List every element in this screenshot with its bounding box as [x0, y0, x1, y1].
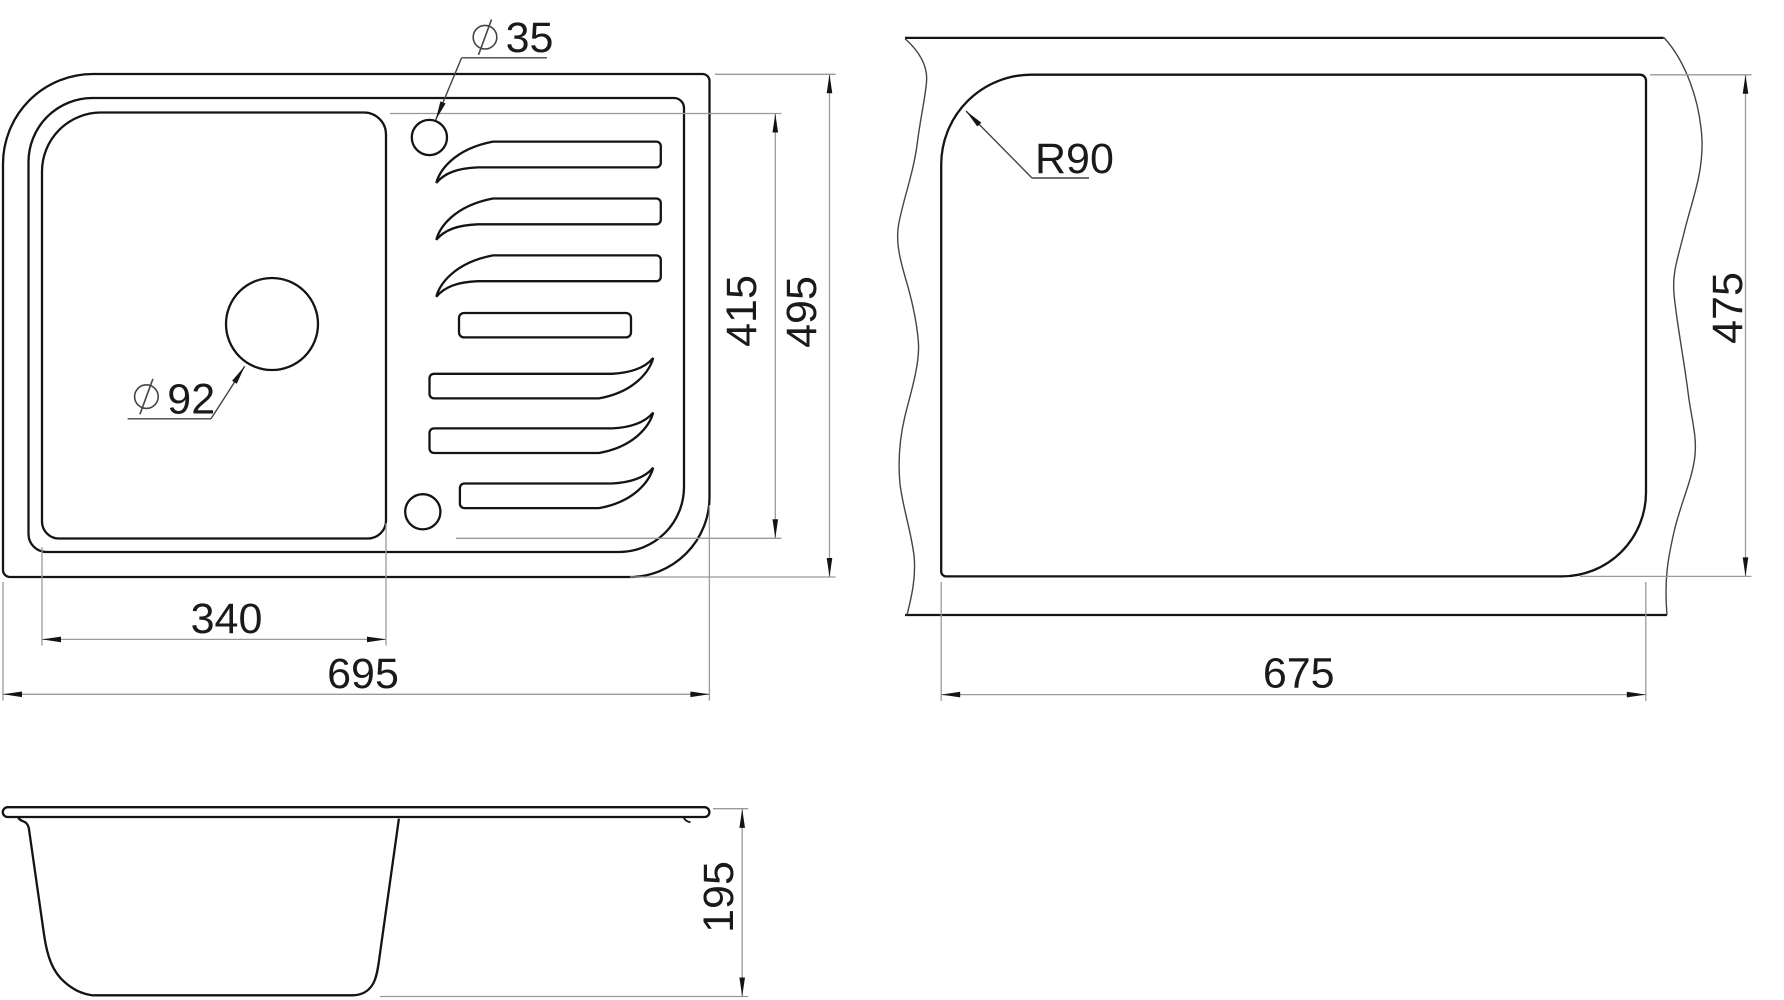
svg-text:92: 92: [167, 375, 215, 423]
svg-text:340: 340: [191, 595, 263, 643]
svg-text:415: 415: [718, 275, 766, 347]
svg-text:R90: R90: [1035, 135, 1114, 183]
svg-text:695: 695: [327, 650, 399, 698]
svg-text:495: 495: [778, 276, 826, 348]
svg-text:195: 195: [695, 861, 743, 933]
svg-text:475: 475: [1704, 272, 1752, 344]
svg-text:675: 675: [1263, 649, 1335, 697]
svg-text:35: 35: [506, 14, 554, 62]
